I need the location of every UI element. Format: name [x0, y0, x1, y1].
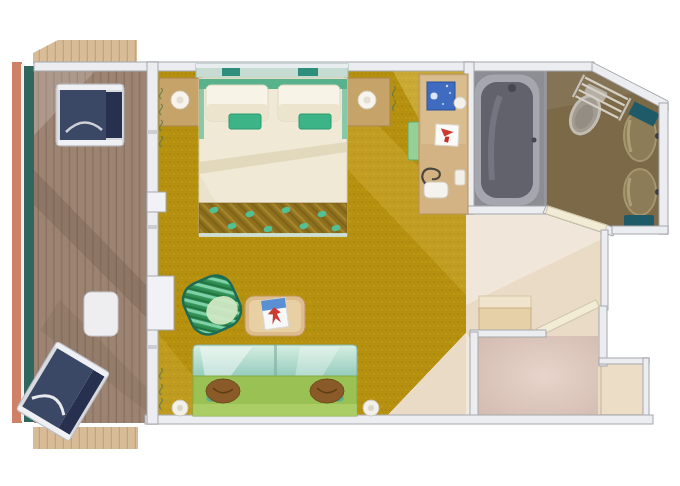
double-bed [199, 78, 347, 237]
bed-runner [199, 203, 347, 234]
window-mullion [147, 345, 158, 349]
folded-towel-left [229, 114, 261, 129]
tub-faucet [508, 84, 516, 92]
side-table [84, 292, 118, 336]
bath-bottom-wall [464, 206, 548, 214]
stateroom-floorplan [0, 0, 680, 486]
right-wall [659, 103, 668, 234]
hall-right-wall [601, 230, 608, 310]
deck-extension-bottom [33, 427, 138, 449]
soap-dish [454, 97, 466, 109]
folded-towel-right [299, 114, 331, 129]
vanity-bottom-wall [612, 226, 668, 234]
balcony [12, 40, 151, 449]
door-stub-wall [599, 306, 607, 366]
sofa [193, 345, 357, 416]
window-mullion [147, 130, 158, 134]
bottle [455, 170, 465, 185]
closet-right-wall [643, 358, 649, 418]
window-mullion [147, 225, 158, 229]
headboard-accent [298, 68, 318, 76]
tub-divider [544, 66, 547, 210]
vestibule-left-wall [470, 332, 478, 417]
window-tab [147, 192, 166, 212]
sofa-cushion-left [205, 379, 240, 403]
balcony-wall [147, 62, 158, 424]
headboard-accent [222, 68, 240, 76]
magazine [261, 298, 289, 330]
hull-strip [12, 62, 22, 423]
vestibule-floor [478, 336, 598, 415]
headboard-mirror [196, 64, 348, 68]
balcony-railing [24, 66, 34, 422]
bathtub [474, 74, 540, 206]
balcony-door [147, 276, 174, 330]
floorplan-canvas [0, 0, 680, 486]
logo-card [435, 124, 459, 146]
closet-top-wall [599, 358, 649, 364]
vestibule-top-wall [470, 330, 546, 337]
lounge-chair-top [56, 84, 124, 146]
sofa-cushion-right [310, 379, 345, 403]
coffee-table [245, 296, 305, 336]
entry-closet [601, 362, 647, 415]
